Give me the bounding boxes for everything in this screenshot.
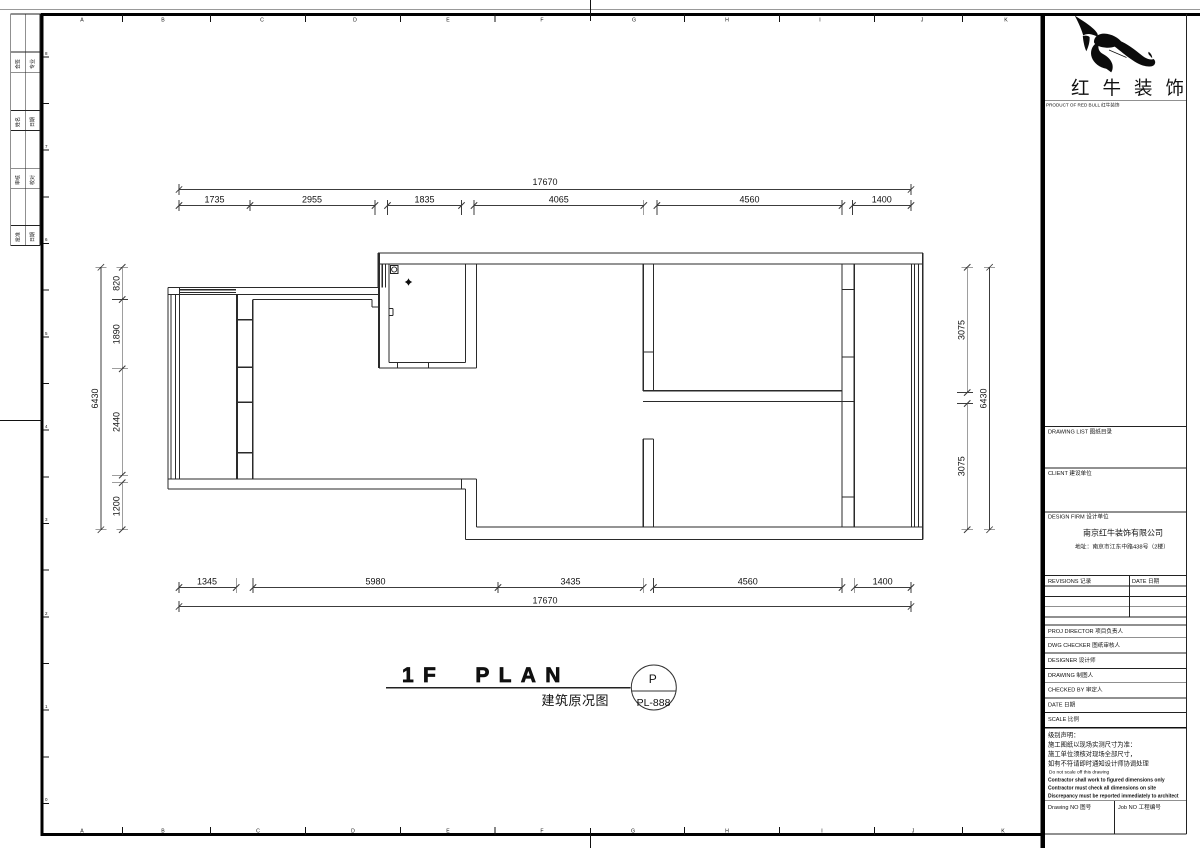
svg-text:P: P <box>649 672 657 686</box>
svg-text:建筑原况图: 建筑原况图 <box>542 693 610 708</box>
svg-text:H: H <box>725 18 729 24</box>
svg-text:级别声明：: 级别声明： <box>1048 730 1079 739</box>
svg-text:K: K <box>1001 829 1005 835</box>
svg-text:1345: 1345 <box>197 577 217 587</box>
svg-text:H: H <box>725 829 729 835</box>
svg-text:4560: 4560 <box>739 195 759 205</box>
svg-text:审核: 审核 <box>15 175 22 185</box>
svg-text:F: F <box>540 18 543 24</box>
svg-text:如有不符请即时通知设计师协调处理: 如有不符请即时通知设计师协调处理 <box>1048 759 1149 768</box>
svg-text:I: I <box>821 829 822 835</box>
svg-text:Contractor shall work to figur: Contractor shall work to figured dimensi… <box>1048 778 1165 784</box>
svg-text:J: J <box>912 829 915 835</box>
svg-text:校对: 校对 <box>29 175 36 185</box>
svg-text:4560: 4560 <box>738 577 758 587</box>
svg-text:Do not scale off this drawing: Do not scale off this drawing <box>1049 770 1110 776</box>
svg-text:地址：南京市江东中路438号（2楼）: 地址：南京市江东中路438号（2楼） <box>1075 543 1169 551</box>
svg-text:D: D <box>353 18 357 24</box>
svg-text:CLIENT 建设单位: CLIENT 建设单位 <box>1048 469 1092 477</box>
svg-text:PRODUCT OF RED BULL 红牛装饰: PRODUCT OF RED BULL 红牛装饰 <box>1046 102 1120 109</box>
svg-text:F: F <box>540 829 543 835</box>
svg-text:PL-888: PL-888 <box>637 697 671 709</box>
svg-text:DWG CHECKER 图纸审核人: DWG CHECKER 图纸审核人 <box>1048 641 1121 649</box>
svg-text:日期: 日期 <box>30 232 36 242</box>
svg-text:DESIGN FIRM 设计单位: DESIGN FIRM 设计单位 <box>1048 513 1109 521</box>
svg-text:日期: 日期 <box>30 117 36 127</box>
svg-text:3075: 3075 <box>956 456 966 476</box>
svg-text:5980: 5980 <box>365 577 385 587</box>
svg-text:DRAWING LIST 图纸目录: DRAWING LIST 图纸目录 <box>1048 428 1112 436</box>
svg-text:E: E <box>446 829 450 835</box>
svg-text:17670: 17670 <box>532 177 557 187</box>
svg-text:3075: 3075 <box>956 320 966 340</box>
svg-text:6430: 6430 <box>979 388 989 408</box>
svg-text:施工单位须核对现场全部尺寸，: 施工单位须核对现场全部尺寸， <box>1048 749 1136 758</box>
svg-text:专业: 专业 <box>29 59 36 69</box>
svg-text:Job NO 工程编号: Job NO 工程编号 <box>1118 803 1161 811</box>
svg-text:C: C <box>260 18 264 24</box>
svg-text:DATE 日期: DATE 日期 <box>1132 578 1160 585</box>
svg-text:1890: 1890 <box>112 324 122 344</box>
svg-text:会签: 会签 <box>15 59 22 69</box>
svg-text:2440: 2440 <box>112 412 122 432</box>
svg-text:施工图纸以现场实测尺寸为准：: 施工图纸以现场实测尺寸为准： <box>1048 740 1136 749</box>
svg-text:红牛装饰: 红牛装饰 <box>1071 78 1197 99</box>
svg-text:CHECKED BY 审定人: CHECKED BY 审定人 <box>1048 686 1103 694</box>
svg-text:K: K <box>1004 18 1008 24</box>
svg-text:1835: 1835 <box>414 195 434 205</box>
svg-text:REVISIONS 记录: REVISIONS 记录 <box>1048 577 1092 585</box>
svg-text:G: G <box>631 829 635 835</box>
svg-text:820: 820 <box>112 276 122 291</box>
svg-text:DRAWING 制图人: DRAWING 制图人 <box>1048 671 1094 679</box>
svg-text:B: B <box>161 829 165 835</box>
svg-text:Contractor must check all dime: Contractor must check all dimensions on … <box>1048 786 1156 792</box>
svg-text:4065: 4065 <box>549 195 569 205</box>
svg-text:2955: 2955 <box>302 195 322 205</box>
svg-text:SCALE 比例: SCALE 比例 <box>1048 715 1079 723</box>
svg-text:1200: 1200 <box>112 496 122 516</box>
svg-text:A: A <box>80 829 84 835</box>
svg-text:DATE 日期: DATE 日期 <box>1048 702 1076 709</box>
svg-text:E: E <box>446 18 450 24</box>
svg-text:J: J <box>921 18 924 24</box>
svg-text:批准: 批准 <box>15 232 22 242</box>
svg-text:1735: 1735 <box>204 195 224 205</box>
svg-text:17670: 17670 <box>532 596 557 606</box>
svg-text:3435: 3435 <box>560 577 580 587</box>
svg-text:1400: 1400 <box>873 577 893 587</box>
svg-text:I: I <box>819 18 820 24</box>
svg-text:B: B <box>161 18 165 24</box>
svg-text:C: C <box>256 829 260 835</box>
svg-text:G: G <box>632 18 636 24</box>
svg-text:1400: 1400 <box>872 195 892 205</box>
svg-text:A: A <box>80 18 84 24</box>
svg-text:1F PLAN: 1F PLAN <box>402 664 570 687</box>
svg-text:DESIGNER 设计师: DESIGNER 设计师 <box>1048 656 1096 664</box>
svg-text:D: D <box>351 829 355 835</box>
svg-text:姓名: 姓名 <box>15 117 22 127</box>
svg-text:6430: 6430 <box>90 388 100 408</box>
svg-text:PROJ DIRECTOR 项目负责人: PROJ DIRECTOR 项目负责人 <box>1048 627 1124 635</box>
svg-text:Discrepancy must be reported i: Discrepancy must be reported immediately… <box>1048 794 1179 800</box>
svg-text:Drawing NO 图号: Drawing NO 图号 <box>1048 803 1092 811</box>
svg-text:南京红牛装饰有限公司: 南京红牛装饰有限公司 <box>1083 528 1163 538</box>
